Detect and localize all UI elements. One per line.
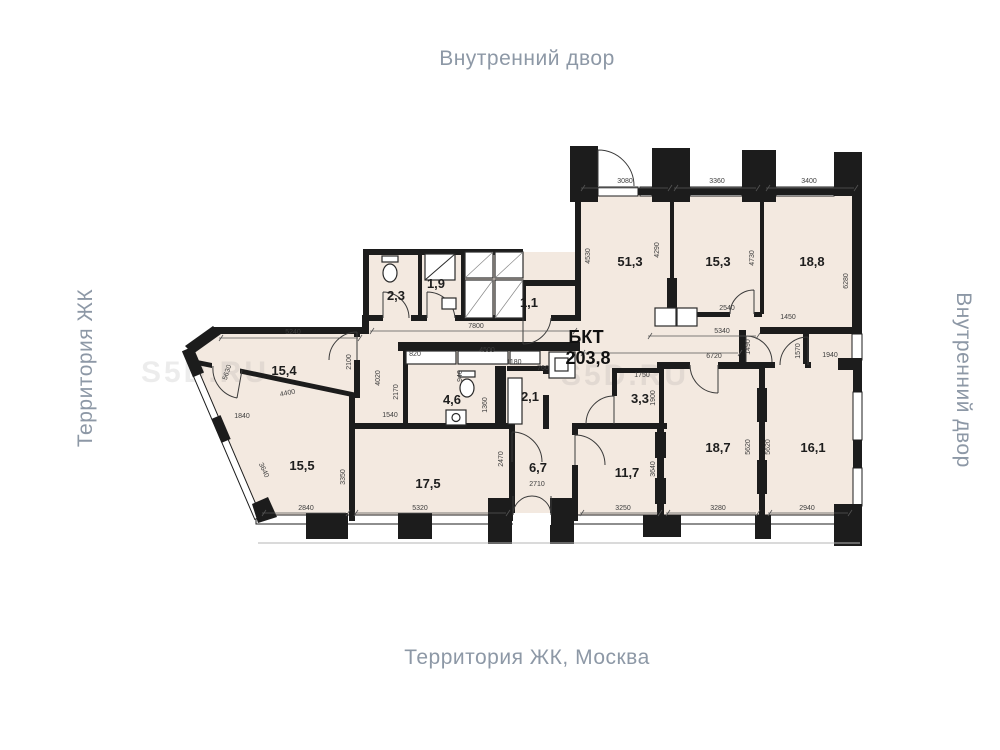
wall-layer-part (418, 252, 422, 318)
wall-layer-part (521, 280, 581, 286)
wall-layer-part (760, 190, 764, 314)
dim-3080: 3080 (617, 178, 633, 185)
label-territory-bottom: Территория ЖК, Москва (404, 646, 650, 669)
plan-title-area: 203,8 (565, 348, 610, 368)
entrance-opening (513, 513, 551, 525)
kitchen-unit-icon (655, 308, 676, 326)
wall-layer-part (853, 358, 862, 392)
column-pillar (570, 146, 598, 202)
plan-title-name: БКТ (568, 327, 603, 347)
wall-layer-part (543, 395, 549, 429)
dim-2540: 2540 (719, 305, 735, 312)
wall-layer-part (551, 315, 581, 321)
window-right-1 (852, 334, 862, 360)
room-area-6-7: 6,7 (529, 460, 547, 475)
dim-3250: 3250 (615, 505, 631, 512)
wall-layer-part (349, 423, 512, 429)
room-area-18-7: 18,7 (705, 440, 730, 455)
column-pillar (742, 150, 776, 202)
wall-layer-part (853, 440, 862, 468)
window-right-3 (853, 468, 862, 506)
dim-940: 940 (457, 370, 464, 382)
dim-1540: 1540 (382, 412, 398, 419)
dim-1570: 1570 (795, 343, 802, 359)
wall-layer-part (757, 460, 767, 494)
wall-layer-part (657, 362, 690, 369)
wall-layer-part (461, 252, 465, 318)
wall-layer-part (349, 396, 355, 521)
room-area-15-5: 15,5 (289, 458, 314, 473)
label-territory-left: Территория ЖК (74, 289, 97, 447)
dim-1490: 1490 (745, 339, 752, 355)
room-area-4-6: 4,6 (443, 392, 461, 407)
label-courtyard-top: Внутренний двор (439, 47, 615, 70)
dim-2100: 2100 (346, 354, 353, 370)
wall-layer-part (354, 360, 360, 398)
room-area-18-8: 18,8 (799, 254, 824, 269)
floor-plan-canvas: Внутренний двор Территория ЖК, Москва Те… (0, 0, 1000, 750)
dim-3280: 3280 (710, 505, 726, 512)
dim-820: 820 (409, 351, 421, 358)
dim-2840: 2840 (298, 505, 314, 512)
wall-layer-part (655, 432, 666, 458)
dim-4530: 4530 (585, 248, 592, 264)
dim-2710: 2710 (529, 481, 545, 488)
wall-layer-part (575, 188, 581, 321)
room-area-16-1: 16,1 (800, 440, 825, 455)
kitchen-unit-icon (677, 308, 697, 326)
dim-1360: 1360 (482, 397, 489, 413)
room-area-15-4: 15,4 (271, 363, 297, 378)
wall-layer-part (612, 370, 617, 396)
dim-4020: 4020 (375, 370, 382, 386)
floor-plan-page: Внутренний двор Территория ЖК, Москва Те… (0, 0, 1000, 750)
dim-1180: 1180 (506, 359, 521, 366)
wardrobe-icon (508, 378, 522, 424)
wall-layer-part (495, 366, 506, 429)
dim-5620: 5620 (745, 439, 752, 455)
dim-6280: 6280 (843, 273, 850, 289)
dim-6720: 6720 (706, 353, 722, 360)
dim-3350: 3350 (340, 469, 347, 485)
room-area-2-1: 2,1 (521, 389, 539, 404)
dim-1840: 1840 (234, 413, 250, 420)
room-area-17-5: 17,5 (415, 476, 440, 491)
wall-layer-part (757, 388, 767, 422)
column-pillar (398, 513, 432, 539)
dim-7800: 7800 (468, 323, 484, 330)
dim-1450: 1450 (780, 314, 796, 321)
dim-5320: 5320 (412, 505, 428, 512)
wall-layer-part (759, 362, 775, 368)
dim-1900: 1900 (650, 390, 657, 406)
dim-4500: 4500 (479, 347, 495, 354)
room-area-1-9: 1,9 (427, 276, 445, 291)
dim-1750: 1750 (634, 372, 650, 379)
room-area-51-3: 51,3 (617, 254, 642, 269)
wall-layer-part (852, 186, 862, 334)
room-area-11-7: 11,7 (615, 465, 640, 480)
wall-layer-part (659, 368, 664, 428)
dim-5620: 5620 (765, 439, 772, 455)
toilet-icon (383, 264, 397, 282)
column-pillar (306, 513, 348, 539)
dim-3400: 3400 (801, 178, 817, 185)
dim-2940: 2940 (799, 505, 815, 512)
sink-icon (442, 298, 456, 309)
room-area-2-3: 2,3 (387, 288, 405, 303)
wall-layer-part (667, 278, 677, 312)
wall-layer-part (760, 327, 860, 334)
dim-5340: 5340 (714, 328, 730, 335)
wall-layer-part (655, 478, 666, 504)
washer-icon (452, 414, 460, 422)
column-pillar (834, 504, 862, 546)
column-pillar (755, 515, 771, 539)
label-courtyard-right: Внутренний двор (952, 292, 975, 468)
dim-2170: 2170 (393, 384, 400, 400)
room-area-3-3: 3,3 (631, 391, 649, 406)
column-pillar (643, 515, 681, 537)
dim-3360: 3360 (709, 178, 725, 185)
dim-1940: 1940 (822, 352, 838, 359)
room-area-15-3: 15,3 (705, 254, 730, 269)
wall-layer-part (575, 423, 667, 429)
toilet-icon (382, 256, 398, 262)
wall-layer-part (363, 249, 369, 321)
column-pillar (550, 498, 574, 544)
dim-3640: 3640 (650, 461, 657, 477)
dim-760: 760 (537, 365, 549, 372)
window-right-2 (853, 392, 862, 440)
wall-layer-part (754, 312, 762, 317)
room-area-1-1: 1,1 (520, 295, 538, 310)
dim-5240: 5240 (285, 329, 301, 336)
dim-4290: 4290 (654, 242, 661, 258)
dim-2470: 2470 (498, 451, 505, 467)
column-pillar (488, 498, 512, 544)
dim-4730: 4730 (749, 250, 756, 266)
